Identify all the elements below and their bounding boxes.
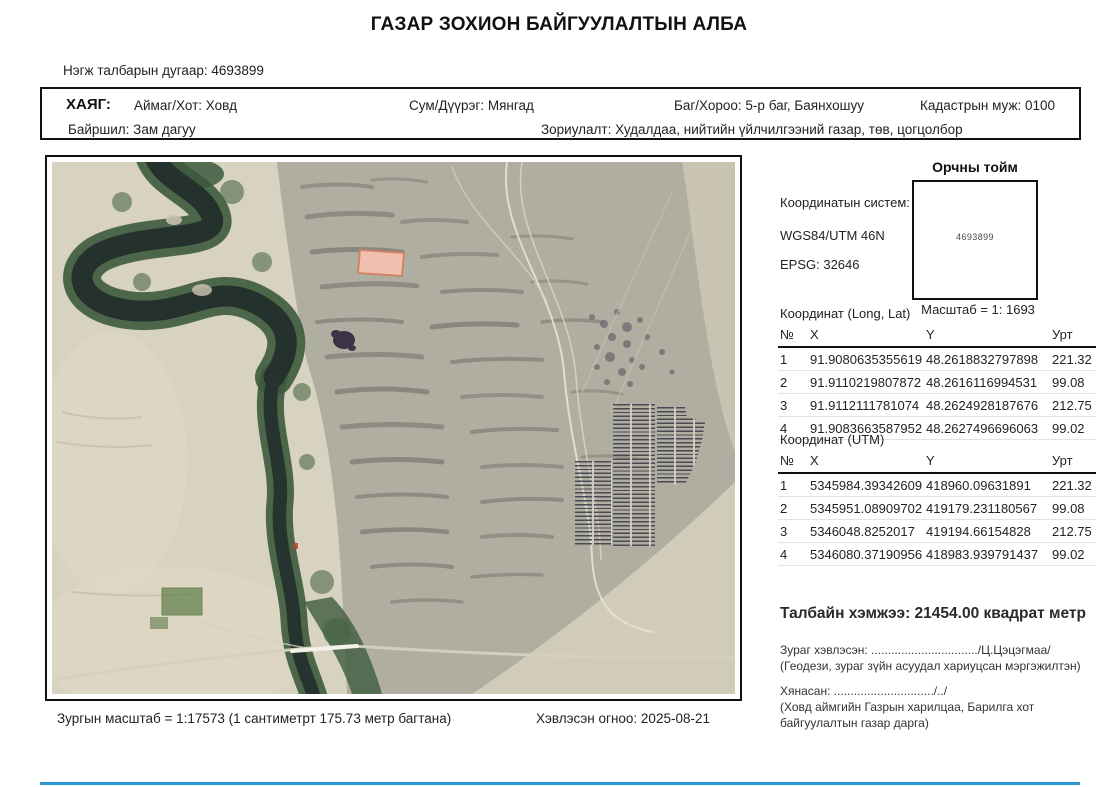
- coord-system-value: WGS84/UTM 46N: [780, 228, 885, 243]
- table-row: 15345984.39342609418960.09631891221.32: [778, 473, 1096, 497]
- utm-table-title: Координат (UTM): [780, 432, 884, 447]
- table-cell: 5346048.8252017: [810, 520, 926, 543]
- column-header: №: [778, 325, 810, 347]
- table-cell: 48.2618832797898: [926, 347, 1052, 371]
- area-size: Талбайн хэмжээ: 21454.00 квадрат метр: [780, 605, 1086, 623]
- table-cell: 91.9110219807872: [810, 371, 926, 394]
- table-cell: 48.2627496696063: [926, 417, 1052, 440]
- table-cell: 3: [778, 520, 810, 543]
- vicinity-map-title: Орчны тойм: [910, 159, 1040, 175]
- address-cadastral-zone: Кадастрын муж: 0100: [920, 98, 1055, 113]
- vicinity-map-box: 4693899: [912, 180, 1038, 300]
- table-row: 35346048.8252017419194.66154828212.75: [778, 520, 1096, 543]
- column-header: X: [810, 451, 926, 473]
- table-row: 391.911211178107448.2624928187676212.75: [778, 394, 1096, 417]
- table-cell: 418983.939791437: [926, 543, 1052, 566]
- vicinity-parcel-number: 4693899: [914, 232, 1036, 242]
- printed-by-role: (Геодези, зураг зүйн асуудал хариуцсан м…: [780, 658, 1110, 674]
- reviewed-role: (Ховд аймгийн Газрын харилцаа, Барилга х…: [780, 699, 1110, 731]
- table-cell: 1: [778, 347, 810, 371]
- address-aimag: Аймаг/Хот: Ховд: [134, 98, 237, 113]
- map-scale-note: Зургын масштаб = 1:17573 (1 сантиметрт 1…: [57, 711, 451, 726]
- address-bag: Баг/Хороо: 5-р баг, Баянхошуу: [674, 98, 864, 113]
- reviewed-line: Хянасан: ............................../…: [780, 683, 1110, 699]
- table-cell: 99.08: [1052, 371, 1096, 394]
- longlat-table-title: Координат (Long, Lat): [780, 306, 910, 321]
- table-cell: 2: [778, 497, 810, 520]
- reviewed-by-block: Хянасан: ............................../…: [780, 683, 1110, 732]
- map-frame: [45, 155, 742, 701]
- page-title: ГАЗАР ЗОХИОН БАЙГУУЛАЛТЫН АЛБА: [0, 14, 1118, 36]
- parcel-number-line: Нэгж талбарын дугаар: 4693899: [63, 63, 264, 78]
- table-cell: 48.2624928187676: [926, 394, 1052, 417]
- table-cell: 5346080.37190956: [810, 543, 926, 566]
- column-header: X: [810, 325, 926, 347]
- utm-table: №XYУрт15345984.39342609418960.0963189122…: [778, 451, 1096, 566]
- column-header: Урт: [1052, 451, 1096, 473]
- table-row: 45346080.37190956418983.93979143799.02: [778, 543, 1096, 566]
- table-cell: 1: [778, 473, 810, 497]
- address-sum: Сум/Дүүрэг: Мянгад: [409, 98, 534, 113]
- solar-array-left: [575, 461, 612, 545]
- printed-date: Хэвлэсэн огноо: 2025-08-21: [536, 711, 710, 726]
- table-row: 291.911021980787248.261611699453199.08: [778, 371, 1096, 394]
- bottom-accent-line: [40, 782, 1080, 785]
- satellite-map: [52, 162, 735, 694]
- table-cell: 99.08: [1052, 497, 1096, 520]
- vicinity-scale: Масштаб = 1: 1693: [888, 302, 1068, 317]
- table-cell: 99.02: [1052, 543, 1096, 566]
- table-cell: 4: [778, 543, 810, 566]
- table-cell: 48.2616116994531: [926, 371, 1052, 394]
- table-cell: 5345951.08909702: [810, 497, 926, 520]
- column-header: Урт: [1052, 325, 1096, 347]
- address-box: ХАЯГ: Аймаг/Хот: Ховд Сум/Дүүрэг: Мянгад…: [40, 87, 1081, 140]
- coordinates-panel: Орчны тойм 4693899 Координатын систем: W…: [778, 155, 1096, 745]
- table-cell: 419179.231180567: [926, 497, 1052, 520]
- table-cell: 91.9112111781074: [810, 394, 926, 417]
- table-cell: 91.9080635355619: [810, 347, 926, 371]
- printed-by-line: Зураг хэвлэсэн: ........................…: [780, 642, 1110, 658]
- coord-system-label: Координатын систем:: [780, 195, 910, 210]
- solar-array-center: [613, 404, 655, 546]
- cadastral-document-page: ГАЗАР ЗОХИОН БАЙГУУЛАЛТЫН АЛБА Нэгж талб…: [0, 0, 1118, 787]
- table-cell: 418960.09631891: [926, 473, 1052, 497]
- column-header: Y: [926, 325, 1052, 347]
- table-row: 25345951.08909702419179.23118056799.08: [778, 497, 1096, 520]
- table-cell: 221.32: [1052, 473, 1096, 497]
- table-cell: 99.02: [1052, 417, 1096, 440]
- printed-by-block: Зураг хэвлэсэн: ........................…: [780, 642, 1110, 674]
- table-row: 191.908063535561948.2618832797898221.32: [778, 347, 1096, 371]
- table-cell: 221.32: [1052, 347, 1096, 371]
- column-header: №: [778, 451, 810, 473]
- address-location: Байршил: Зам дагуу: [68, 122, 196, 137]
- table-cell: 212.75: [1052, 394, 1096, 417]
- epsg-code: EPSG: 32646: [780, 257, 860, 272]
- table-cell: 2: [778, 371, 810, 394]
- table-cell: 3: [778, 394, 810, 417]
- table-cell: 212.75: [1052, 520, 1096, 543]
- green-field: [162, 588, 202, 615]
- address-label: ХАЯГ:: [66, 96, 111, 113]
- longlat-table: №XYУрт191.908063535561948.26188327978982…: [778, 325, 1096, 440]
- red-roof-building: [293, 543, 298, 549]
- table-cell: 419194.66154828: [926, 520, 1052, 543]
- column-header: Y: [926, 451, 1052, 473]
- table-cell: 5345984.39342609: [810, 473, 926, 497]
- parcel-highlight: [358, 250, 404, 276]
- address-purpose: Зориулалт: Худалдаа, нийтийн үйлчилгээни…: [541, 122, 963, 137]
